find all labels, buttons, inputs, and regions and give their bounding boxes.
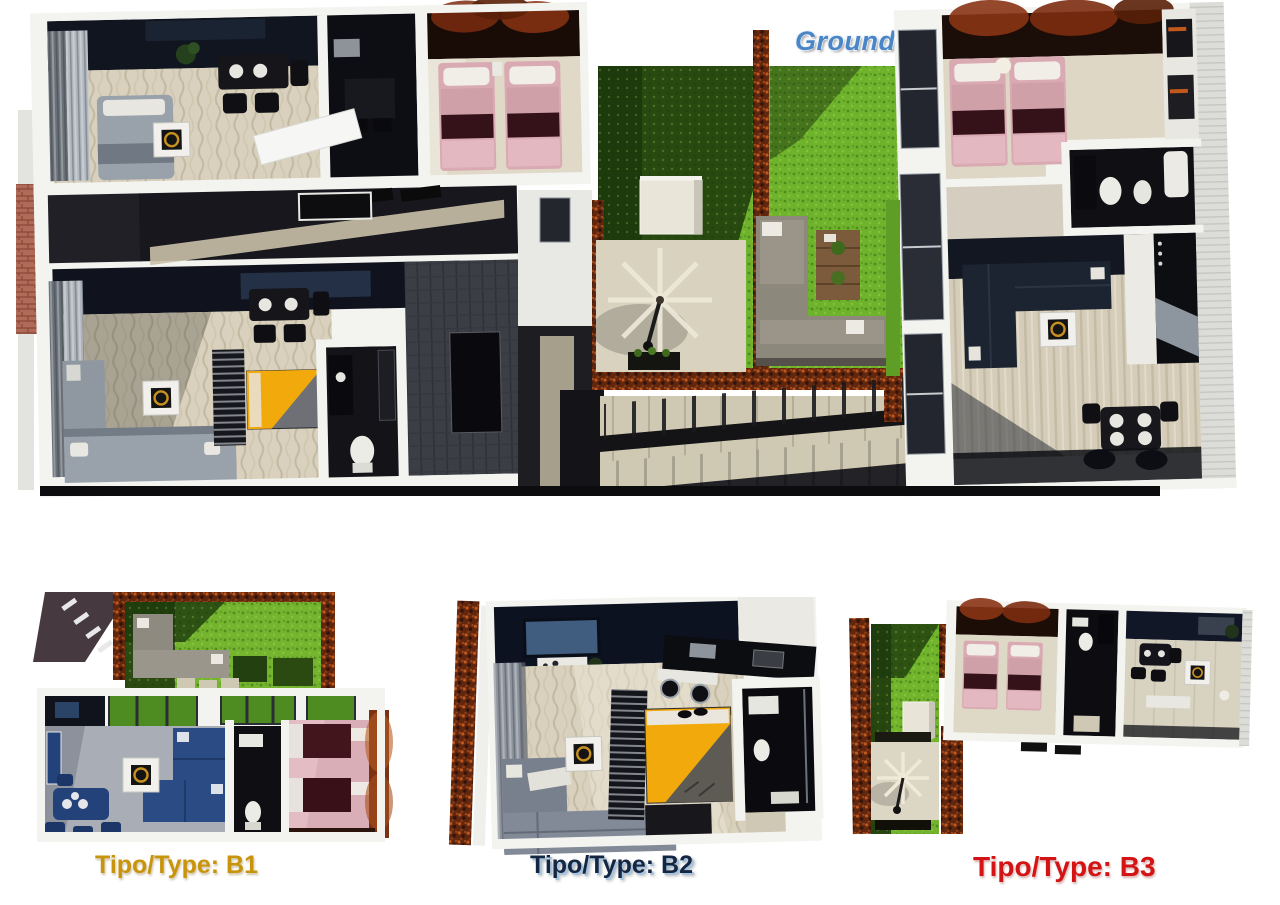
bathroom (732, 677, 824, 833)
wall-picture (524, 618, 599, 656)
bench (1146, 695, 1190, 708)
patio-umbrella (869, 732, 939, 830)
bed (504, 61, 562, 170)
coffee-table (565, 736, 602, 771)
unit-b1-render (25, 592, 400, 848)
unit-b2-render (425, 597, 835, 855)
unit-label-b2: Tipo/Type: B2 (530, 851, 693, 880)
apartment-strip (943, 598, 1253, 759)
bathroom (1063, 609, 1118, 736)
bed (949, 58, 1008, 167)
left-building (30, 0, 597, 497)
coffee-table (1185, 660, 1211, 684)
unit-label-b3: Tipo/Type: B3 (973, 851, 1156, 883)
bathroom (233, 726, 281, 834)
curtains (47, 30, 90, 181)
nightstand (492, 62, 502, 76)
apartment (37, 688, 393, 842)
front-wall-edge (40, 486, 1160, 496)
coffee-table (153, 122, 190, 157)
coffee-table (1040, 312, 1077, 347)
bed (962, 641, 999, 710)
main-floorplan-render (0, 0, 1280, 512)
floorplan-sheet: Planta Baja Ground Floor (0, 0, 1280, 905)
side-grass (884, 200, 902, 422)
door-mat (1021, 742, 1047, 752)
twin-bedroom (953, 598, 1058, 735)
dark-kitchen-zone (404, 259, 522, 475)
wardrobe (1162, 9, 1199, 140)
bed (1006, 642, 1043, 711)
slat-headboard (608, 689, 647, 820)
right-building (893, 0, 1236, 496)
twin-bedroom (427, 0, 583, 177)
slat-partition (212, 349, 246, 446)
lower-apartment (35, 259, 523, 497)
bed (438, 62, 496, 171)
lounge-table (816, 230, 860, 300)
unit-b3-render (845, 598, 1255, 848)
yellow-bed (247, 370, 322, 430)
apartment (486, 597, 825, 855)
bed (1009, 56, 1068, 165)
garden (113, 592, 335, 690)
coffee-table (143, 381, 180, 416)
door-mat (299, 193, 372, 221)
garden (592, 30, 932, 390)
living-room (1123, 611, 1242, 740)
kitchen (1124, 233, 1199, 365)
door-mat (1055, 745, 1081, 755)
dark-study-room (325, 14, 418, 180)
bathroom (1061, 139, 1203, 237)
storage-cube (640, 176, 702, 234)
unit-label-b1: Tipo/Type: B1 (95, 851, 258, 880)
hedge-cube (273, 658, 313, 686)
entry-corridor (48, 183, 518, 267)
yellow-bed (645, 707, 733, 803)
bathroom (316, 338, 409, 492)
living-kitchen (948, 233, 1202, 485)
coffee-table (123, 758, 159, 792)
